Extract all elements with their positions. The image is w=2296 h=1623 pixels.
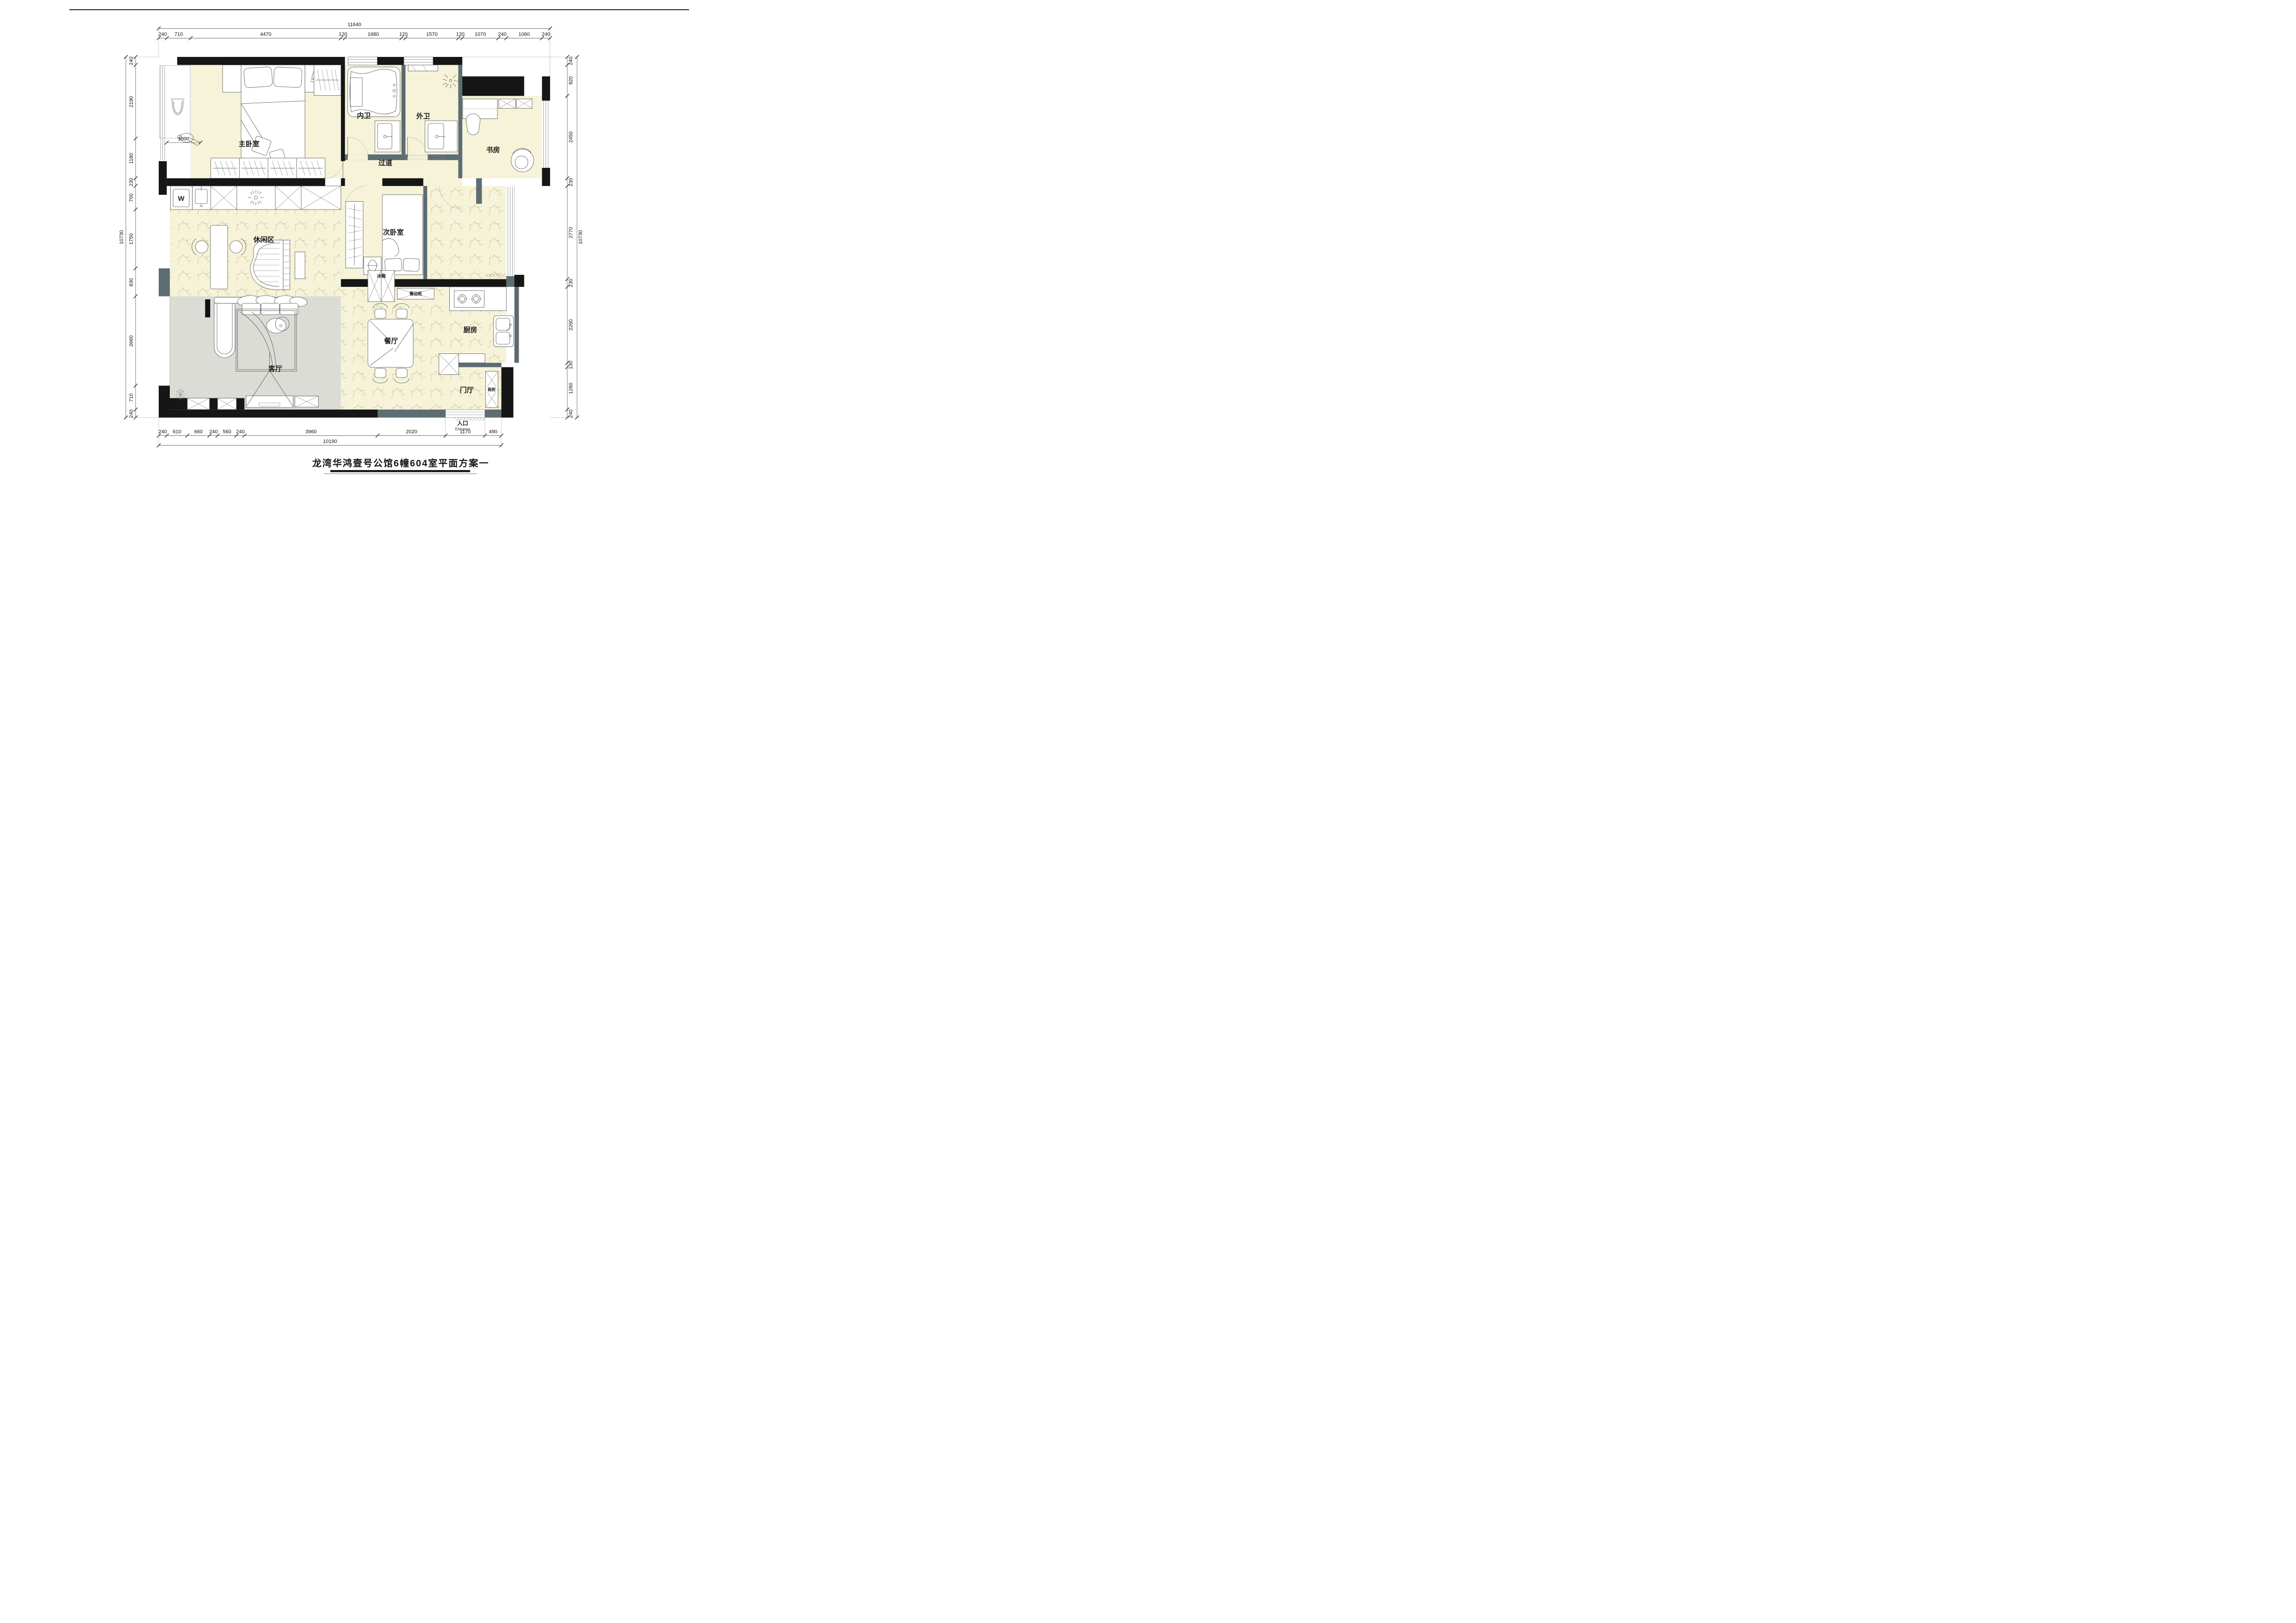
wall-corridor-south [382, 178, 423, 186]
shoe-cabinet-label: 鞋柜 [488, 387, 496, 392]
label-second-bedroom: 次卧室 [383, 228, 403, 236]
window-outer-bath-top [404, 57, 433, 65]
label-entrance-cn: 入口 [457, 420, 468, 427]
fridge-label: 冰箱 [377, 273, 386, 279]
wall-bath-study [458, 65, 462, 178]
speaker-block [205, 299, 210, 317]
svg-text:1180: 1180 [129, 153, 134, 164]
dim-top-total: 11640 [348, 22, 361, 28]
svg-text:240: 240 [209, 429, 217, 435]
svg-text:240: 240 [498, 32, 506, 37]
label-foyer: 门厅 [460, 386, 474, 394]
wall-corner-bottom-right [502, 367, 514, 418]
desk-chair [466, 114, 480, 135]
window-mid-right-bay [508, 187, 513, 278]
svg-text:240: 240 [129, 57, 134, 65]
svg-text:120: 120 [456, 32, 465, 37]
label-study: 书房 [486, 146, 500, 154]
entrance-threshold [446, 409, 485, 421]
mirror-cabinet [408, 65, 438, 71]
dim-right-total: 10730 [578, 230, 583, 245]
closet-top-right [314, 65, 341, 95]
wall-bedroom-bath [341, 65, 345, 161]
dim-right: 240 920 2450 230 2770 230 2260 130 1260 … [565, 55, 583, 420]
svg-text:120: 120 [339, 32, 347, 37]
floor-plan-canvas: 1000 [0, 0, 689, 487]
top-right-boundary [462, 57, 550, 76]
wall-left-block [159, 268, 170, 296]
svg-text:1060: 1060 [519, 32, 530, 37]
svg-text:4470: 4470 [260, 32, 271, 37]
laundry-sink [192, 186, 211, 210]
svg-text:2450: 2450 [568, 131, 574, 142]
svg-text:1750: 1750 [129, 233, 134, 244]
svg-text:560: 560 [223, 429, 231, 435]
label-corridor: 过道 [379, 159, 392, 167]
svg-text:830: 830 [129, 278, 134, 286]
svg-text:230: 230 [129, 178, 134, 186]
svg-text:610: 610 [173, 429, 181, 435]
wall-top-main [177, 57, 345, 65]
window-inner-bath-top [348, 57, 377, 65]
wall-study-north [458, 76, 524, 96]
dim-left: 240 2190 1180 230 700 1750 830 2660 710 … [119, 55, 137, 420]
pillow [385, 258, 402, 272]
master-bed [241, 65, 305, 166]
svg-text:3960: 3960 [305, 429, 316, 435]
svg-text:2770: 2770 [568, 227, 574, 238]
grand-piano [250, 240, 290, 290]
washer-label: W [178, 195, 185, 203]
dim-left-total: 10730 [119, 230, 124, 245]
svg-text:240: 240 [568, 409, 574, 418]
svg-text:2190: 2190 [129, 96, 134, 107]
master-wardrobe [211, 158, 325, 179]
kitchen-counter-stove [450, 287, 507, 311]
wall-kitchen-north [395, 279, 507, 287]
dim-bottom: 240 610 660 240 560 240 3960 2020 1170 4… [157, 429, 503, 447]
label-leisure: 休闲区 [253, 235, 274, 244]
left-bay-window-area [160, 66, 191, 138]
bay-lounge-chair [171, 99, 185, 115]
title-block: 龙湾华鸿壹号公馆6幢604室平面方案一 [312, 458, 490, 474]
kitchen-sink [494, 316, 514, 347]
wall-bottom-black [167, 409, 378, 417]
sideboard-label: 餐边柜 [409, 291, 422, 296]
vanity-outer-bath [425, 121, 458, 152]
fridge: 冰箱 [368, 270, 395, 302]
svg-text:130: 130 [568, 361, 574, 369]
svg-text:230: 230 [568, 178, 574, 186]
wall-bottom-slate [378, 409, 446, 417]
svg-text:240: 240 [129, 409, 134, 418]
svg-text:660: 660 [194, 429, 203, 435]
svg-text:710: 710 [174, 32, 183, 37]
dim-bottom-total: 10190 [323, 439, 337, 445]
label-living: 客厅 [268, 365, 282, 373]
study-cabinets [499, 99, 532, 108]
dim-top: 240 710 4470 120 1680 120 1570 120 1070 … [157, 22, 552, 40]
leisure-cabinet-row [211, 186, 341, 210]
label-kitchen: 厨房 [463, 326, 477, 334]
svg-text:240: 240 [568, 57, 574, 65]
svg-text:240: 240 [159, 32, 167, 37]
svg-text:240: 240 [542, 32, 550, 37]
window-left-bay [161, 66, 165, 160]
svg-text:120: 120 [399, 32, 408, 37]
title-underline-thick [330, 470, 470, 472]
pillow [403, 258, 420, 271]
svg-text:1680: 1680 [367, 32, 379, 37]
svg-text:710: 710 [129, 393, 134, 402]
svg-text:1260: 1260 [568, 383, 574, 394]
wall-master-south [167, 178, 325, 186]
label-outer-bath: 外卫 [416, 112, 430, 120]
svg-text:920: 920 [568, 76, 574, 85]
window-study-east [544, 101, 548, 168]
svg-text:1570: 1570 [426, 32, 437, 37]
drawing-sheet: 1000 [0, 0, 689, 487]
vanity-inner-bath [375, 121, 400, 152]
svg-text:700: 700 [129, 193, 134, 202]
svg-text:2260: 2260 [568, 319, 574, 330]
piano-bench [295, 252, 305, 279]
svg-text:2660: 2660 [129, 335, 134, 347]
svg-text:230: 230 [568, 279, 574, 287]
leisure-table [211, 225, 228, 289]
svg-text:240: 240 [236, 429, 244, 435]
washing-machine: W [170, 186, 192, 210]
pillow [244, 67, 273, 88]
label-dining: 餐厅 [384, 337, 398, 345]
sideboard: 餐边柜 [397, 288, 434, 299]
label-inner-bath: 内卫 [357, 112, 371, 120]
svg-text:490: 490 [489, 429, 497, 435]
bathtub [348, 67, 400, 117]
wall-second-bedroom-east [423, 186, 427, 279]
svg-text:1070: 1070 [475, 32, 486, 37]
label-master-bedroom: 主卧室 [239, 140, 260, 148]
dim-1000: 1000 [178, 136, 189, 142]
shoe-cabinet: 鞋柜 [485, 371, 498, 407]
svg-text:2020: 2020 [406, 429, 417, 435]
pillow [273, 67, 302, 87]
drawing-title: 龙湾华鸿壹号公馆6幢604室平面方案一 [312, 458, 490, 469]
second-wardrobe [346, 201, 363, 268]
svg-text:240: 240 [159, 429, 167, 435]
nightstand-left [223, 65, 241, 92]
hatch-strip-kitchen-top [485, 274, 506, 277]
svg-text:1170: 1170 [460, 429, 471, 435]
wall-left-mid [159, 161, 167, 195]
